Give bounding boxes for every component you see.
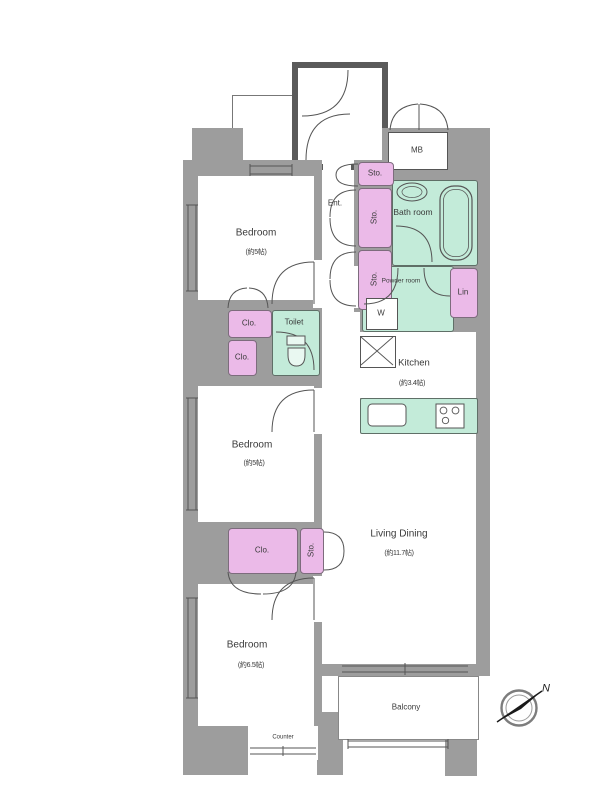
meter-box-label: MB xyxy=(411,145,423,154)
closet-clo3-label: Clo. xyxy=(255,545,269,554)
linen-label: Lin xyxy=(458,287,469,296)
toilet-icon xyxy=(287,336,305,366)
entrance-label: Ent. xyxy=(328,198,342,207)
closet-clo1-label: Clo. xyxy=(242,318,256,327)
floor-plan: Bedroom (約5帖) Bedroom (約5帖) Bedroom (約6.… xyxy=(0,0,600,800)
closet-clo2-label: Clo. xyxy=(235,352,249,361)
bedroom1-label: Bedroom xyxy=(236,227,277,239)
windows xyxy=(186,164,468,756)
storage-sto1-label: Sto. xyxy=(368,168,382,177)
washer-label: W xyxy=(377,308,385,317)
bedroom3-area: (約6.5帖) xyxy=(238,662,264,670)
compass-north-label: N xyxy=(542,683,550,696)
fridge-space-icon xyxy=(361,337,393,365)
bedroom2-area: (約5帖) xyxy=(243,460,264,468)
bedroom3-label: Bedroom xyxy=(227,639,268,651)
balcony-label: Balcony xyxy=(392,702,420,711)
storage-sto3-label: Sto. xyxy=(370,272,379,286)
storage-sto2-label: Sto. xyxy=(370,210,379,224)
bedroom2-label: Bedroom xyxy=(232,439,273,451)
bedroom1-area: (約5帖) xyxy=(245,249,266,257)
toilet-label: Toilet xyxy=(285,317,304,326)
kitchen-area: (約3.4帖) xyxy=(399,380,425,388)
living-dining-label: Living Dining xyxy=(370,528,427,540)
powder-room-label: Powder room xyxy=(380,277,422,284)
plan-linework xyxy=(0,0,600,800)
storage-sto4-label: Sto. xyxy=(307,543,316,557)
counter-label: Counter xyxy=(272,735,293,742)
living-dining-area: (約11.7帖) xyxy=(384,550,413,558)
stove-icon xyxy=(436,404,464,428)
bath-sink-icon xyxy=(397,183,427,201)
compass-icon xyxy=(497,691,542,726)
bathtub-icon xyxy=(440,186,472,260)
kitchen-label: Kitchen xyxy=(398,359,430,370)
bathroom-label: Bath room xyxy=(392,208,434,218)
kitchen-sink-icon xyxy=(368,404,406,426)
